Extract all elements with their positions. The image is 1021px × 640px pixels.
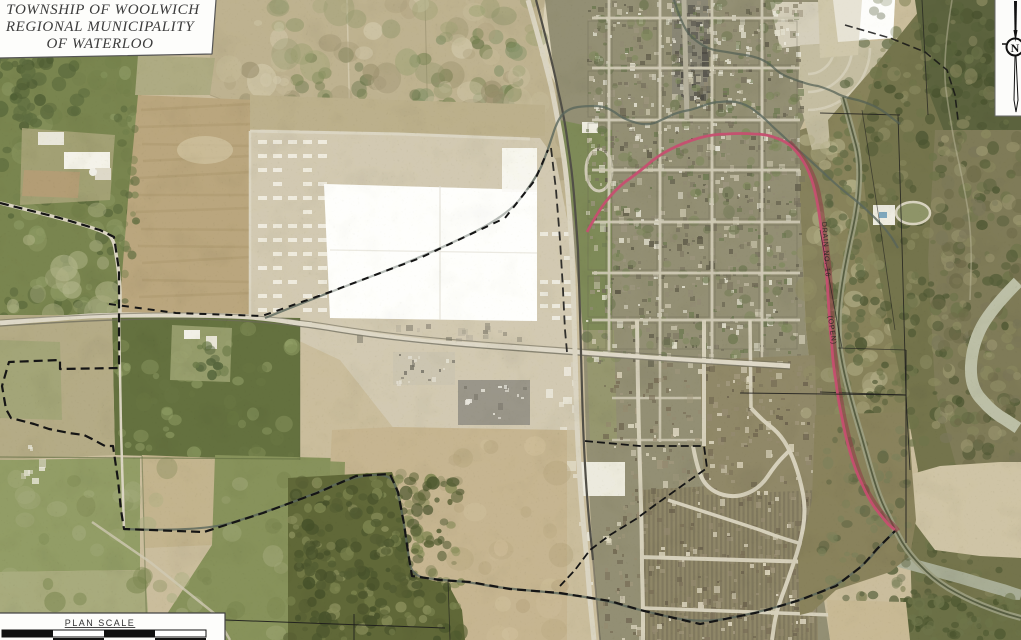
svg-text:OF WATERLOO: OF WATERLOO [46,36,153,52]
svg-text:REGIONAL MUNICIPALITY: REGIONAL MUNICIPALITY [5,19,195,35]
svg-text:PLAN SCALE: PLAN SCALE [65,618,136,628]
svg-text:TOWNSHIP OF WOOLWICH: TOWNSHIP OF WOOLWICH [6,2,200,18]
svg-text:N: N [1011,41,1020,55]
